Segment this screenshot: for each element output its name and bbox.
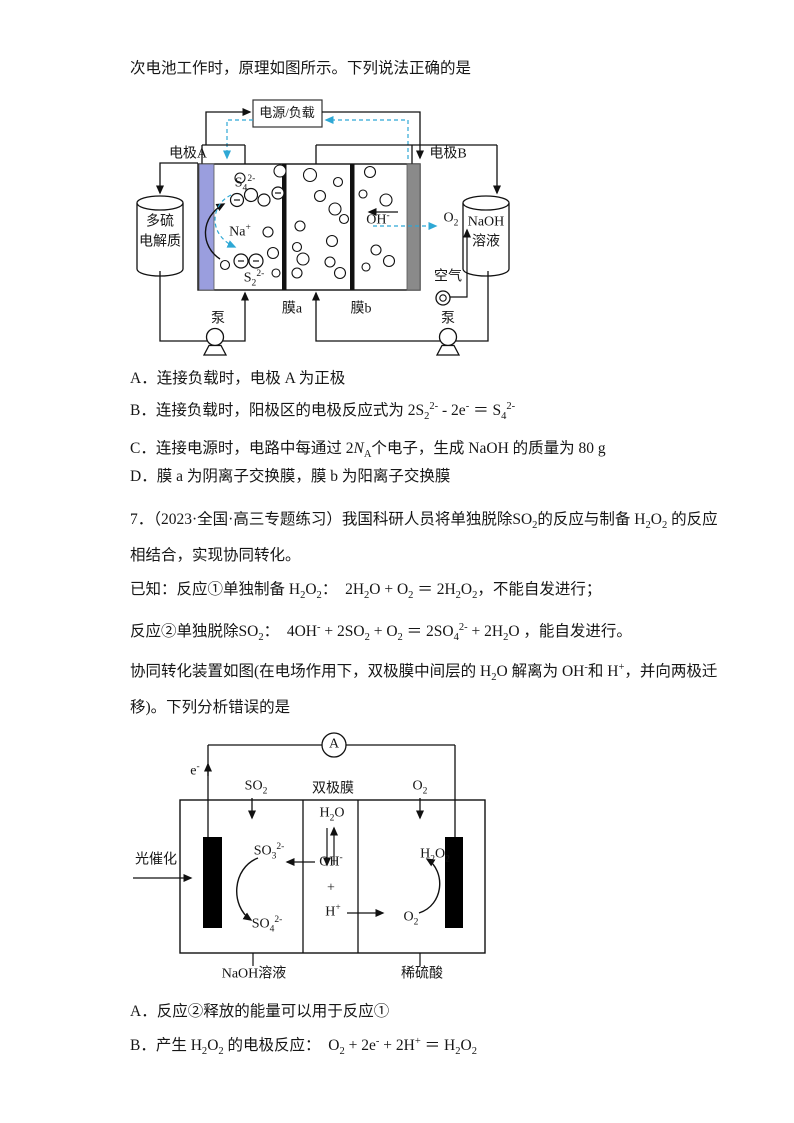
o2-to-h2o2-arrow bbox=[419, 859, 440, 913]
membrane-b-label: 膜b bbox=[351, 303, 372, 318]
tank-right-label-1: NaOH bbox=[468, 216, 505, 231]
battery-flow-cell-diagram: 电源/负载 电极A 电极B S42- Na+ S22- OH- O2 空气 多硫… bbox=[130, 95, 560, 370]
pipe-to-polysulfide-cylinder bbox=[160, 163, 198, 193]
so4-label: SO42- bbox=[252, 918, 283, 933]
q7-option-b: B．产生 H2O2 的电极反应： O2 + 2e- + 2H+ ＝ H2O2 bbox=[130, 1037, 477, 1056]
q7-line-4: 反应②单独脱除SO2： 4OH- + 2SO2 + O2 ＝ 2SO42- + … bbox=[130, 623, 632, 642]
q6-option-a: A．连接负载时，电极 A 为正极 bbox=[130, 370, 345, 389]
q7-option-a: A．反应②释放的能量可以用于反应① bbox=[130, 1003, 389, 1022]
air-label: 空气 bbox=[434, 271, 462, 286]
electron-label: e- bbox=[190, 765, 199, 780]
pump-right-label: 泵 bbox=[441, 313, 455, 328]
q6-option-b: B．连接负载时，阳极区的电极反应式为 2S22- - 2e- ＝ S42- bbox=[130, 402, 515, 421]
h-ion-label: H+ bbox=[325, 906, 341, 921]
h2o2-label: H2O2 bbox=[420, 848, 450, 863]
tank-left-label-1: 多硫 bbox=[146, 216, 174, 231]
wire-b-solid bbox=[322, 112, 420, 158]
tab-a bbox=[202, 145, 245, 164]
tank-right-label-2: 溶液 bbox=[472, 236, 500, 251]
membrane-b-bar bbox=[350, 164, 355, 290]
o2-inlet-label: O2 bbox=[413, 780, 428, 795]
pump-left-label: 泵 bbox=[211, 313, 225, 328]
photo-anode-bar bbox=[203, 837, 222, 928]
so2-inlet-label: SO2 bbox=[245, 780, 268, 795]
q7-line-2: 相结合，实现协同转化。 bbox=[130, 547, 301, 566]
tank-left-label-2: 电解质 bbox=[139, 236, 181, 251]
dilute-acid-label: 稀硫酸 bbox=[401, 968, 443, 983]
oh-ion-label: OH- bbox=[366, 214, 389, 229]
q7-line-1: 7．（2023·全国·高三专题练习）我国科研人员将单独脱除SO2的反应与制备 H… bbox=[130, 511, 718, 530]
q6-option-d: D．膜 a 为阴离子交换膜，膜 b 为阳离子交换膜 bbox=[130, 468, 450, 487]
ammeter-label: A bbox=[329, 738, 339, 753]
q6-option-c: C．连接电源时，电路中每通过 2NA个电子，生成 NaOH 的质量为 80 g bbox=[130, 440, 606, 459]
photocatalysis-label: 光催化 bbox=[135, 854, 177, 869]
question6-intro: 次电池工作时，原理如图所示。下列说法正确的是 bbox=[130, 60, 471, 79]
na-ion-label: Na+ bbox=[229, 226, 251, 241]
s2-ion-label: S22- bbox=[244, 272, 265, 287]
wire-a-dashed bbox=[227, 120, 253, 158]
electrode-b-bar bbox=[407, 164, 420, 290]
s4-ion-label: S42- bbox=[235, 177, 256, 192]
pump-left-icon bbox=[204, 329, 226, 356]
so3-label: SO32- bbox=[254, 845, 285, 860]
so3-to-so4-arrow bbox=[237, 858, 258, 920]
o2-right-label: O2 bbox=[404, 911, 419, 926]
q7-line-5: 协同转化装置如图(在电场作用下，双极膜中间层的 H2O 解离为 OH-和 H+，… bbox=[130, 663, 717, 682]
electrode-a-label: 电极A bbox=[169, 148, 207, 163]
oh-label: OH- bbox=[319, 856, 342, 871]
wire-a-solid bbox=[206, 112, 250, 145]
o2-label: O2 bbox=[444, 212, 459, 227]
membrane-a-label: 膜a bbox=[282, 303, 302, 318]
q7-line-6: 移)。下列分析错误的是 bbox=[130, 699, 290, 718]
tab-b bbox=[316, 145, 497, 164]
q7-line-3: 已知：反应①单独制备 H2O2： 2H2O + O2 ＝ 2H2O2，不能自发进… bbox=[130, 581, 601, 600]
wire-b-dashed bbox=[326, 120, 408, 159]
naoh-solution-label: NaOH溶液 bbox=[222, 968, 287, 983]
power-load-label: 电源/负载 bbox=[259, 106, 315, 120]
h2o-label: H2O bbox=[319, 807, 344, 822]
plus-label: + bbox=[327, 882, 335, 897]
membrane-a-bar bbox=[282, 164, 287, 290]
document-page: 次电池工作时，原理如图所示。下列说法正确的是 bbox=[0, 0, 794, 1123]
electrode-b-label: 电极B bbox=[429, 148, 466, 163]
pump-right-icon bbox=[437, 329, 459, 356]
photoelectro-cell-diagram: A e- SO2 双极膜 O2 H2O OH- + H+ 光催化 SO32- S… bbox=[125, 728, 505, 993]
bipolar-membrane-label: 双极膜 bbox=[312, 783, 354, 798]
